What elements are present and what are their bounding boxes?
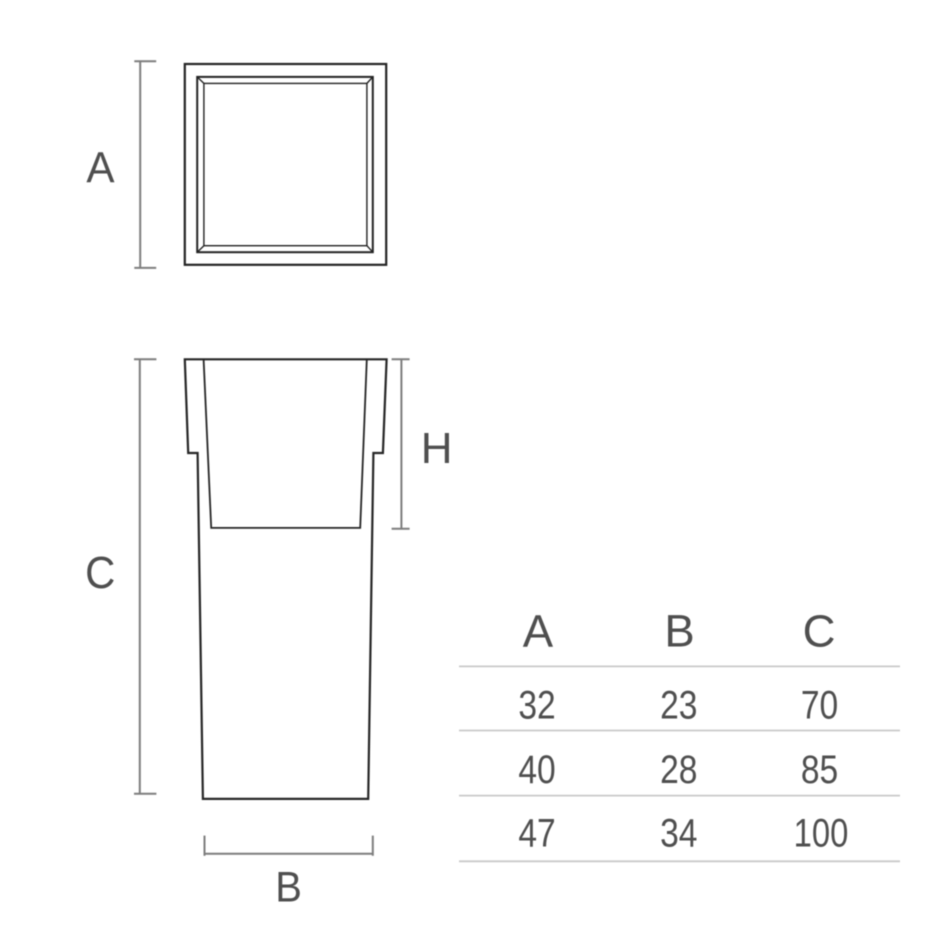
svg-text:47: 47 <box>518 811 555 855</box>
svg-text:40: 40 <box>518 747 555 791</box>
svg-text:100: 100 <box>794 810 849 855</box>
svg-text:B: B <box>275 862 302 911</box>
svg-text:H: H <box>421 424 453 473</box>
svg-text:34: 34 <box>660 811 697 855</box>
svg-text:23: 23 <box>660 683 697 727</box>
svg-text:B: B <box>664 606 694 657</box>
svg-text:C: C <box>803 606 836 657</box>
svg-text:85: 85 <box>801 747 838 791</box>
svg-text:A: A <box>523 606 554 657</box>
svg-text:C: C <box>85 549 115 599</box>
svg-text:A: A <box>86 144 114 193</box>
svg-text:28: 28 <box>660 747 697 791</box>
svg-text:70: 70 <box>801 683 838 727</box>
svg-text:32: 32 <box>518 683 555 727</box>
